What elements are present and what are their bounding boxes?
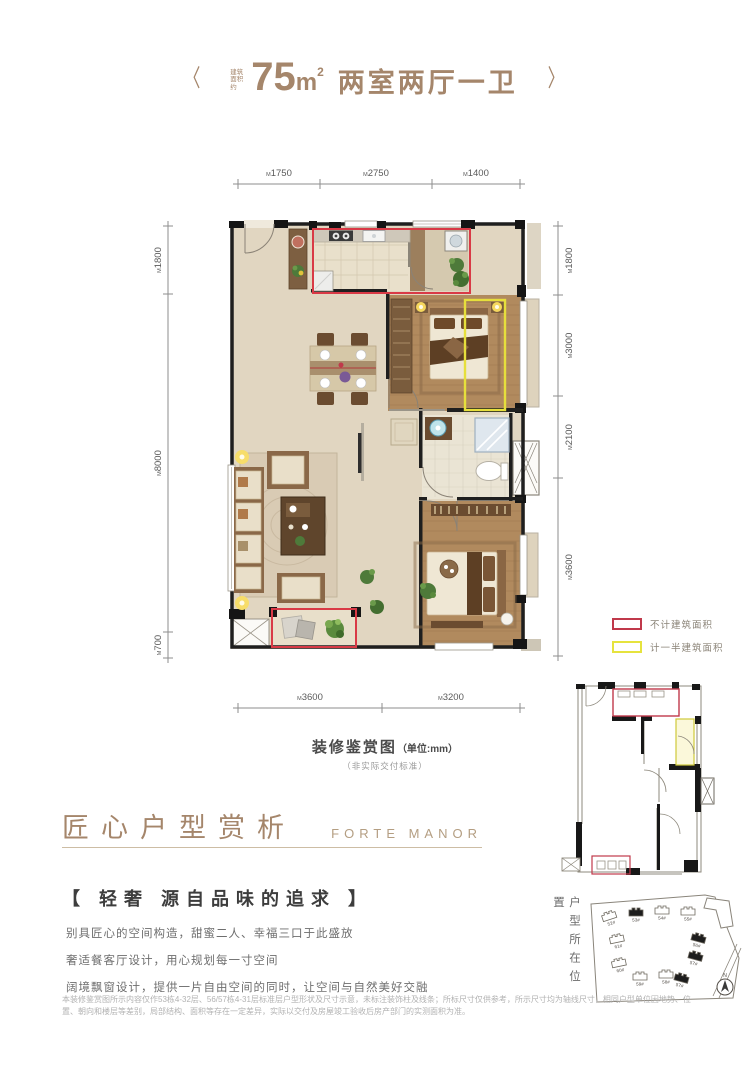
section-title: 匠心户型赏析 bbox=[62, 806, 296, 845]
area-legend: 不计建筑面积计一半建筑面积 bbox=[612, 617, 724, 654]
floorplan-page: 〈 建筑面积约 75m2 两室两厅一卫 〉 M1750M2750M1400M36… bbox=[0, 0, 748, 1080]
disclaimer: 本装修鉴赏图所示内容仅作53栋4-32层、56/57栋4-31层标准层户型形状及… bbox=[62, 994, 702, 1017]
svg-text:M1750: M1750 bbox=[266, 168, 292, 179]
section-subtitle: FORTE MANOR bbox=[331, 826, 482, 845]
caption-note: （非实际交付标准） bbox=[225, 760, 545, 772]
legend-item: 计一半建筑面积 bbox=[612, 640, 724, 654]
bed-headboard bbox=[497, 550, 506, 617]
living-room bbox=[234, 450, 337, 610]
svg-text:59#: 59# bbox=[636, 982, 644, 987]
svg-text:M1800: M1800 bbox=[153, 247, 164, 273]
svg-text:M1400: M1400 bbox=[463, 168, 489, 179]
svg-text:M2100: M2100 bbox=[564, 424, 575, 450]
legend-label: 不计建筑面积 bbox=[650, 617, 713, 631]
svg-text:N: N bbox=[723, 973, 727, 979]
svg-text:53#: 53# bbox=[632, 918, 640, 923]
bed-throw bbox=[467, 552, 482, 615]
main-floorplan bbox=[225, 215, 545, 660]
svg-text:M3200: M3200 bbox=[438, 692, 464, 703]
svg-text:M1800: M1800 bbox=[564, 248, 575, 274]
svg-text:M2750: M2750 bbox=[363, 168, 389, 179]
layout-title: 两室两厅一卫 bbox=[338, 70, 518, 97]
toilet bbox=[476, 462, 502, 481]
section-header: 匠心户型赏析 FORTE MANOR bbox=[62, 806, 482, 845]
svg-text:54#: 54# bbox=[658, 916, 666, 921]
elevator-icon bbox=[701, 778, 714, 804]
half-area-box bbox=[676, 719, 694, 765]
area-prefix-label: 建筑面积约 bbox=[230, 69, 245, 92]
feature-line: 别具匠心的空间构造，甜蜜二人、幸福三口于此盛放 bbox=[66, 921, 429, 948]
legend-swatch bbox=[612, 641, 642, 653]
svg-text:55#: 55# bbox=[684, 917, 692, 922]
tv-cabinet bbox=[431, 504, 511, 516]
caption-unit: （单位:mm） bbox=[397, 744, 458, 755]
feature-line: 奢适餐客厅设计，用心规划每一寸空间 bbox=[66, 948, 429, 975]
svg-text:M3600: M3600 bbox=[297, 692, 323, 703]
area-unit: m bbox=[296, 69, 317, 96]
next-arrow-icon[interactable]: 〉 bbox=[547, 67, 564, 91]
bench bbox=[431, 621, 483, 628]
svg-text:58#: 58# bbox=[662, 980, 670, 985]
caption-title: 装修鉴赏图 bbox=[312, 739, 397, 756]
feature-heading: 【 轻奢 源自品味的追求 】 bbox=[62, 885, 373, 911]
outline-floorplan bbox=[552, 674, 748, 888]
flowers bbox=[340, 372, 351, 383]
legend-label: 计一半建筑面积 bbox=[650, 640, 724, 654]
stove bbox=[329, 231, 353, 242]
bedroom2 bbox=[391, 299, 504, 393]
prev-arrow-icon[interactable]: 〈 bbox=[184, 67, 201, 91]
feature-lines: 别具匠心的空间构造，甜蜜二人、幸福三口于此盛放奢适餐客厅设计，用心规划每一寸空间… bbox=[66, 921, 429, 1002]
corner-platform bbox=[232, 619, 269, 647]
svg-text:M3000: M3000 bbox=[564, 333, 575, 359]
area-superscript: 2 bbox=[317, 65, 324, 79]
bed-tray bbox=[440, 560, 458, 578]
svg-text:M700: M700 bbox=[153, 635, 164, 655]
plan-caption: 装修鉴赏图（单位:mm） （非实际交付标准） bbox=[225, 736, 545, 772]
cushion bbox=[296, 620, 316, 640]
legend-item: 不计建筑面积 bbox=[612, 617, 724, 631]
svg-text:M3600: M3600 bbox=[564, 554, 575, 580]
stool bbox=[501, 613, 513, 625]
header: 〈 建筑面积约 75m2 两室两厅一卫 〉 bbox=[0, 60, 748, 97]
section-divider bbox=[62, 847, 482, 848]
elevator-shaft bbox=[513, 441, 539, 495]
svg-text:M8000: M8000 bbox=[153, 450, 164, 476]
area-value: 75 bbox=[251, 55, 296, 99]
legend-swatch bbox=[612, 618, 642, 630]
unit-title: 建筑面积约 75m2 两室两厅一卫 bbox=[230, 60, 518, 97]
